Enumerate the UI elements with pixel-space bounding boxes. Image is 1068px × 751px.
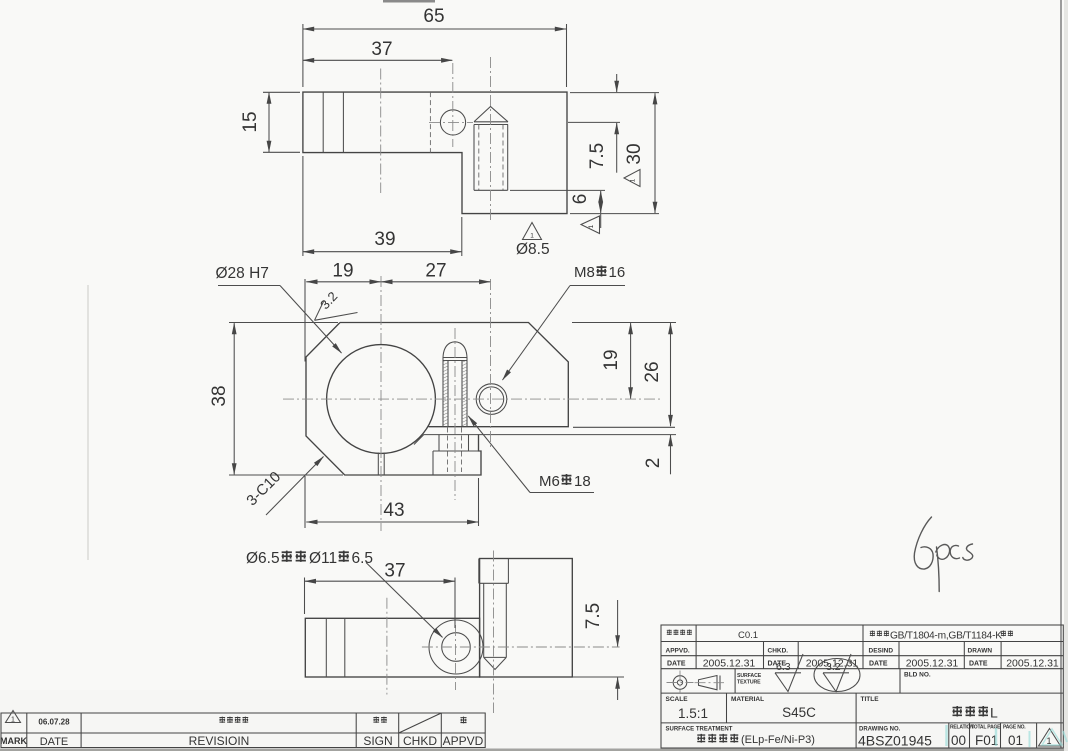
svg-text:MATERIAL: MATERIAL: [731, 696, 764, 703]
svg-text:(ELp-Fe/Ni-P3): (ELp-Fe/Ni-P3): [741, 734, 815, 746]
svg-text:S45C: S45C: [782, 705, 816, 720]
svg-text:2005.12.31: 2005.12.31: [906, 658, 959, 670]
svg-text:TITLE: TITLE: [861, 696, 880, 703]
svg-text:DATE: DATE: [969, 661, 988, 668]
svg-text:APPVD.: APPVD.: [666, 648, 690, 655]
svg-text:Ø28 H7: Ø28 H7: [216, 265, 269, 282]
svg-text:DATE: DATE: [40, 736, 69, 748]
svg-text:6.3: 6.3: [776, 661, 791, 673]
svg-text:SURFACE TREATMENT: SURFACE TREATMENT: [666, 727, 733, 733]
svg-text:6.5: 6.5: [352, 550, 374, 567]
svg-text:MARK: MARK: [0, 736, 27, 746]
svg-text:00: 00: [951, 733, 966, 748]
svg-text:1: 1: [588, 224, 595, 228]
svg-text:C0.1: C0.1: [738, 630, 758, 641]
svg-text:CHKD: CHKD: [403, 734, 437, 748]
svg-text:1: 1: [630, 178, 637, 182]
svg-text:18: 18: [574, 473, 591, 490]
svg-text:PAGE NO.: PAGE NO.: [1003, 725, 1026, 731]
svg-text:16: 16: [609, 264, 626, 281]
svg-text:DATE: DATE: [667, 661, 686, 668]
svg-text:Ø8.5: Ø8.5: [516, 241, 550, 258]
svg-text:L: L: [990, 705, 998, 721]
svg-text:39: 39: [374, 229, 395, 250]
svg-text:6: 6: [570, 194, 591, 205]
svg-text:CHKD.: CHKD.: [768, 648, 789, 655]
svg-text:3.2: 3.2: [826, 661, 841, 673]
svg-text:7.5: 7.5: [587, 143, 608, 169]
svg-text:GB/T1804-m,GB/T1184-K: GB/T1804-m,GB/T1184-K: [890, 631, 1002, 642]
svg-text:SIGN: SIGN: [363, 734, 392, 748]
svg-text:37: 37: [384, 561, 405, 582]
svg-text:1: 1: [530, 233, 534, 240]
svg-text:43: 43: [383, 500, 404, 521]
svg-text:M6: M6: [539, 473, 560, 490]
svg-text:30: 30: [624, 143, 645, 164]
svg-text:01: 01: [1008, 733, 1023, 748]
svg-text:2005.12.31: 2005.12.31: [1006, 658, 1059, 670]
svg-text:15: 15: [240, 111, 261, 132]
svg-text:4BSZ01945: 4BSZ01945: [858, 733, 932, 749]
svg-text:DESIND: DESIND: [869, 648, 894, 655]
svg-text:APPVD: APPVD: [443, 734, 484, 748]
svg-text:06.07.28: 06.07.28: [38, 718, 70, 727]
svg-text:27: 27: [425, 261, 446, 282]
svg-text:M8: M8: [574, 264, 595, 281]
svg-text:1: 1: [11, 717, 15, 724]
svg-text:7.5: 7.5: [583, 603, 604, 629]
svg-text:65: 65: [423, 6, 444, 27]
svg-text:SCALE: SCALE: [666, 696, 689, 703]
svg-text:BLD NO.: BLD NO.: [904, 672, 931, 679]
svg-text:2: 2: [643, 458, 664, 469]
svg-text:REVISIOIN: REVISIOIN: [189, 734, 250, 748]
svg-text:38: 38: [209, 385, 230, 406]
svg-text:Ø6.5: Ø6.5: [246, 550, 280, 567]
svg-text:TEXTURE: TEXTURE: [737, 680, 761, 686]
svg-text:Ø11: Ø11: [309, 550, 337, 567]
svg-text:37: 37: [371, 39, 392, 60]
svg-text:26: 26: [642, 361, 663, 382]
svg-text:2005.12.31: 2005.12.31: [703, 658, 756, 670]
svg-text:DRAWN: DRAWN: [968, 648, 993, 655]
svg-text:19: 19: [332, 261, 353, 282]
svg-text:1.5:1: 1.5:1: [678, 706, 708, 721]
svg-text:SURFACE: SURFACE: [737, 673, 762, 679]
svg-text:19: 19: [601, 349, 622, 370]
svg-text:DATE: DATE: [869, 661, 888, 668]
